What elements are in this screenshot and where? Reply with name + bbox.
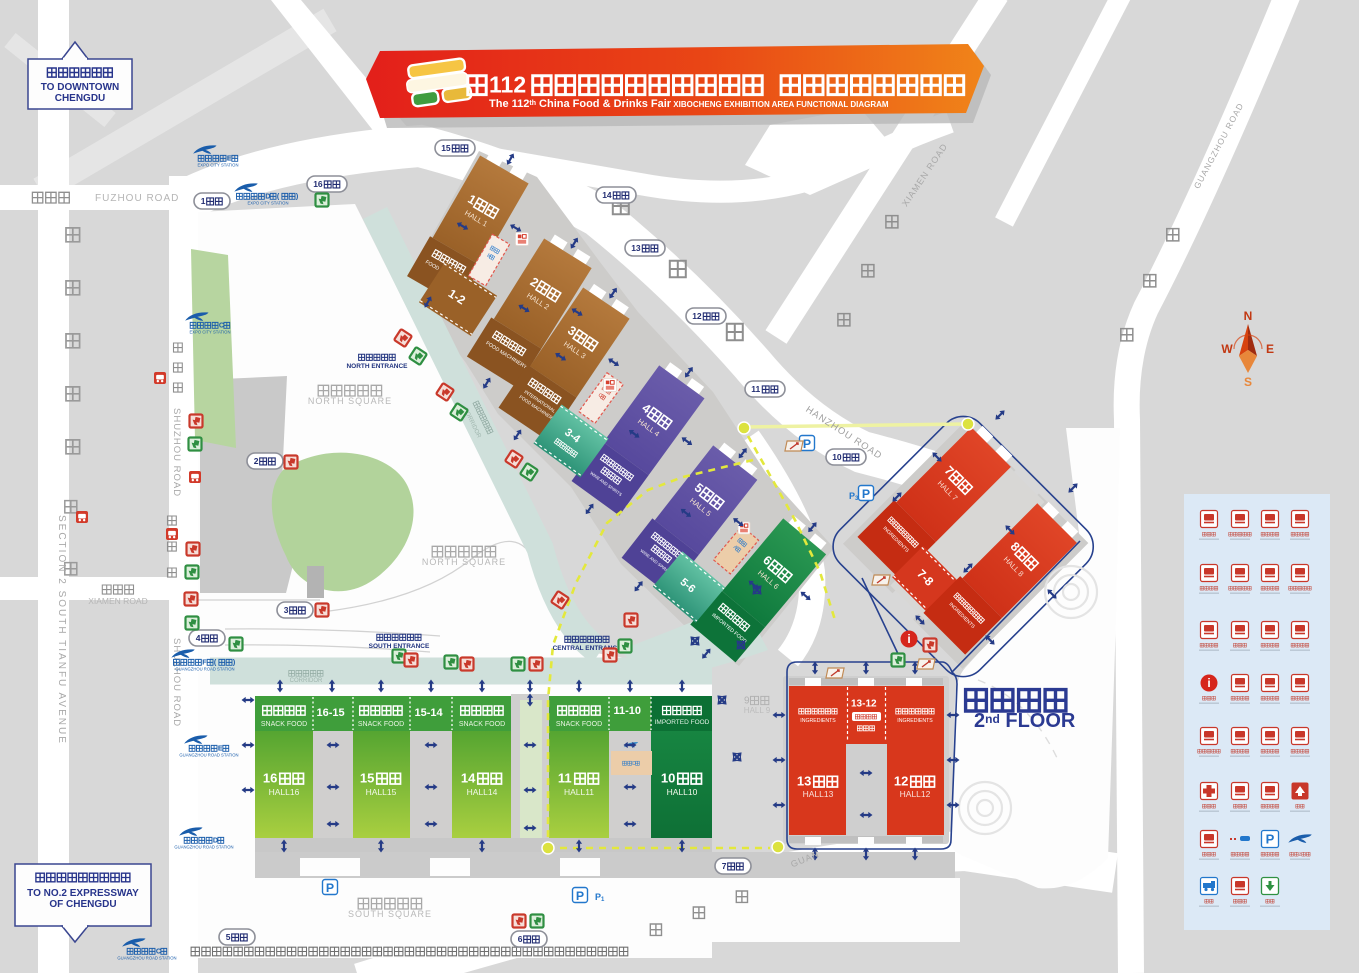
svg-text:HALL16: HALL16: [269, 787, 300, 797]
svg-text:F: F: [202, 658, 207, 667]
svg-text:HALL 9: HALL 9: [744, 706, 771, 715]
svg-text:16: 16: [313, 179, 323, 189]
svg-text:NORTH SQUARE: NORTH SQUARE: [422, 557, 506, 567]
svg-text:P: P: [326, 881, 334, 895]
svg-text:C: C: [219, 321, 224, 330]
svg-text:CORRIDOR: CORRIDOR: [290, 678, 323, 684]
svg-text:The 112th China Food & Drinks: The 112th China Food & Drinks Fair XIBOC…: [489, 98, 889, 110]
svg-text:IMPORTED FOOD: IMPORTED FOOD: [655, 719, 710, 726]
svg-text:E: E: [1266, 342, 1274, 356]
svg-text:D: D: [265, 192, 270, 201]
svg-text:HALL15: HALL15: [366, 787, 397, 797]
svg-text:13-12: 13-12: [851, 699, 877, 710]
svg-text:5: 5: [226, 932, 231, 942]
svg-text:SHUZHOU ROAD: SHUZHOU ROAD: [171, 408, 182, 497]
svg-text:TO NO.2 EXPRESSWAY: TO NO.2 EXPRESSWAY: [27, 888, 139, 899]
svg-text:16-15: 16-15: [317, 707, 345, 719]
svg-text:GUANGZHOU ROAD STATION: GUANGZHOU ROAD STATION: [174, 845, 233, 850]
svg-text:SNACK FOOD: SNACK FOOD: [459, 721, 505, 728]
svg-text:i: i: [1207, 676, 1210, 690]
svg-text:14: 14: [602, 190, 612, 200]
svg-text:NORTH ENTRANCE: NORTH ENTRANCE: [346, 363, 408, 370]
svg-text:EXPO CITY STATION: EXPO CITY STATION: [198, 163, 239, 168]
svg-text:GUANGZHOU ROAD STATION: GUANGZHOU ROAD STATION: [175, 667, 234, 672]
svg-text:15: 15: [441, 143, 451, 153]
svg-text:P: P: [862, 487, 870, 501]
svg-text:P: P: [576, 889, 584, 903]
svg-text:GUANGZHOU ROAD STATION: GUANGZHOU ROAD STATION: [117, 956, 176, 961]
svg-text:13: 13: [631, 243, 641, 253]
svg-text:11: 11: [751, 384, 760, 394]
svg-text:HALL11: HALL11: [564, 787, 594, 797]
svg-text:6: 6: [518, 934, 523, 944]
svg-text:15-14: 15-14: [415, 707, 444, 719]
svg-text:E: E: [227, 154, 232, 163]
svg-text:INGREDIENTS: INGREDIENTS: [800, 718, 836, 724]
svg-text:9: 9: [744, 696, 750, 707]
svg-text:N: N: [1244, 309, 1253, 323]
svg-text:HALL12: HALL12: [900, 789, 931, 799]
svg-text:P: P: [803, 437, 811, 451]
svg-text:SNACK FOOD: SNACK FOOD: [358, 721, 404, 728]
svg-text:HALL14: HALL14: [467, 787, 498, 797]
svg-text:3: 3: [284, 605, 289, 615]
svg-text:NORTH SQUARE: NORTH SQUARE: [308, 396, 392, 406]
svg-text:SOUTH SQUARE: SOUTH SQUARE: [348, 909, 432, 919]
svg-text:13: 13: [797, 774, 811, 789]
svg-text:XIAMEN ROAD: XIAMEN ROAD: [88, 596, 148, 606]
svg-text:16: 16: [263, 771, 277, 786]
svg-text:HALL10: HALL10: [667, 787, 698, 797]
svg-text:1: 1: [201, 196, 206, 206]
svg-text:P: P: [1266, 832, 1275, 847]
svg-text:11: 11: [558, 771, 572, 786]
svg-text:GUANGZHOU ROAD STATION: GUANGZHOU ROAD STATION: [179, 753, 238, 758]
svg-text:7: 7: [722, 861, 727, 871]
svg-text:S: S: [1244, 375, 1252, 389]
svg-text:2: 2: [1299, 852, 1302, 857]
svg-text:EXPO CITY STATION: EXPO CITY STATION: [190, 330, 231, 335]
svg-text:4: 4: [196, 633, 201, 643]
svg-text:2: 2: [254, 456, 259, 466]
svg-text:14: 14: [461, 771, 476, 786]
svg-text:C: C: [156, 947, 161, 956]
svg-text:112: 112: [489, 71, 526, 97]
svg-text:15: 15: [360, 771, 374, 786]
svg-text:HALL13: HALL13: [803, 789, 834, 799]
svg-text:10: 10: [832, 452, 842, 462]
svg-text:EXPO CITY STATION: EXPO CITY STATION: [248, 201, 289, 206]
svg-text:SNACK FOOD: SNACK FOOD: [261, 721, 307, 728]
svg-text:SECTION 2 SOUTH TIANFU AVENUE: SECTION 2 SOUTH TIANFU AVENUE: [56, 515, 67, 745]
svg-text:SNACK FOOD: SNACK FOOD: [556, 721, 602, 728]
svg-text:E: E: [218, 744, 223, 753]
svg-text:i: i: [907, 632, 910, 646]
svg-text:CHENGDU: CHENGDU: [55, 93, 106, 104]
svg-text:12: 12: [692, 311, 702, 321]
svg-text:10: 10: [661, 771, 675, 786]
svg-text:OF CHENGDU: OF CHENGDU: [49, 899, 116, 910]
svg-text:FUZHOU ROAD: FUZHOU ROAD: [95, 193, 179, 204]
svg-text:12: 12: [894, 774, 908, 789]
svg-text:11-10: 11-10: [614, 705, 642, 717]
svg-text:TO DOWNTOWN: TO DOWNTOWN: [41, 82, 120, 93]
svg-text:W: W: [1221, 342, 1233, 356]
svg-text:D: D: [213, 836, 218, 845]
svg-text:INGREDIENTS: INGREDIENTS: [897, 718, 933, 724]
